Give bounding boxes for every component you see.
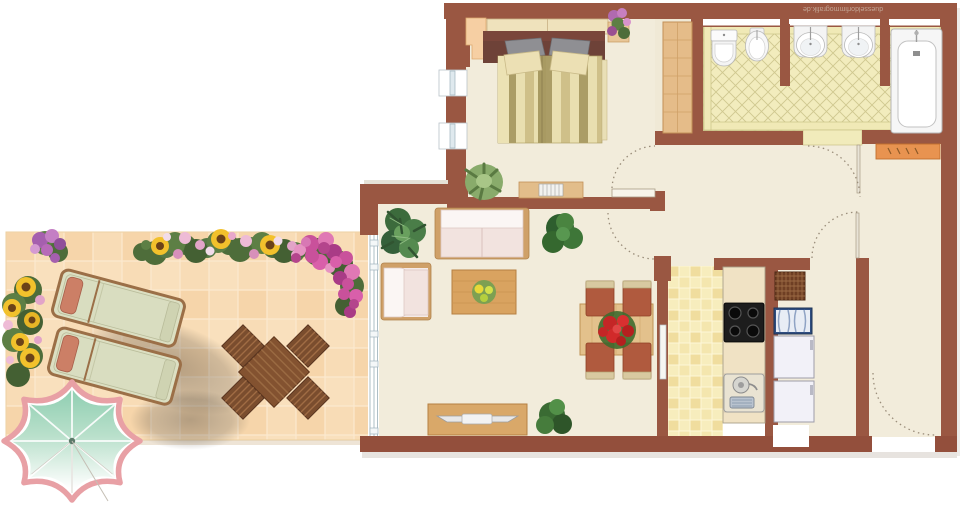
svg-text:duesseldorfimmografik.de: duesseldorfimmografik.de xyxy=(803,5,883,12)
